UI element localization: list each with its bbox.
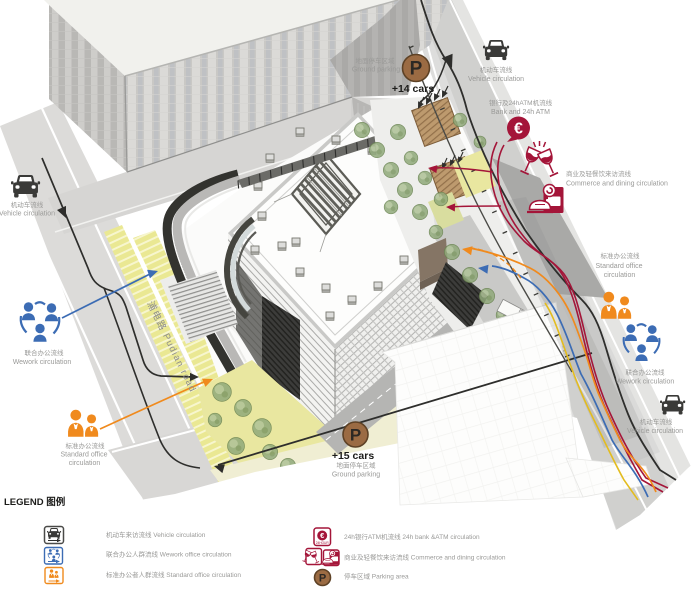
svg-text:地面停车区域: 地面停车区域 bbox=[337, 461, 377, 470]
svg-text:LEGEND 图例: LEGEND 图例 bbox=[4, 496, 65, 508]
svg-text:联合办公人群流线 Wework office circula: 联合办公人群流线 Wework office circulation bbox=[106, 550, 232, 559]
svg-text:标准办公流线: 标准办公流线 bbox=[601, 251, 641, 260]
svg-text:Ground parking: Ground parking bbox=[352, 67, 400, 74]
svg-text:24HOUR: 24HOUR bbox=[316, 541, 330, 545]
svg-text:联合办公流线: 联合办公流线 bbox=[25, 348, 65, 357]
svg-text:商业及轻餐饮来访流线: 商业及轻餐饮来访流线 bbox=[566, 169, 632, 178]
svg-text:机动车来访流线 Vehicle circulation: 机动车来访流线 Vehicle circulation bbox=[106, 530, 206, 539]
svg-text:Bank and 24h ATM: Bank and 24h ATM bbox=[491, 109, 550, 116]
svg-text:Wework circulation: Wework circulation bbox=[13, 359, 72, 366]
svg-text:Standard office: Standard office bbox=[61, 452, 108, 459]
svg-text:机动车流线: 机动车流线 bbox=[480, 65, 513, 74]
svg-text:银行及24hATM机流线: 银行及24hATM机流线 bbox=[489, 98, 553, 107]
svg-text:Vehicle circulation: Vehicle circulation bbox=[627, 428, 683, 435]
svg-text:24h银行ATM机流线 24h bank &ATM circ: 24h银行ATM机流线 24h bank &ATM circulation bbox=[344, 532, 480, 541]
svg-text:Ground parking: Ground parking bbox=[332, 472, 380, 479]
svg-text:机动车流线: 机动车流线 bbox=[640, 417, 673, 426]
svg-text:€: € bbox=[514, 121, 523, 138]
svg-text:P: P bbox=[319, 572, 326, 584]
svg-text:标准办公流线: 标准办公流线 bbox=[66, 441, 106, 450]
svg-text:Wework circulation: Wework circulation bbox=[616, 379, 675, 386]
svg-text:P: P bbox=[350, 426, 361, 445]
svg-text:机动车流线: 机动车流线 bbox=[11, 200, 44, 209]
svg-text:circulation: circulation bbox=[69, 460, 101, 467]
svg-text:Standard office: Standard office bbox=[596, 263, 643, 270]
svg-text:Vehicle circulation: Vehicle circulation bbox=[0, 211, 55, 218]
svg-text:商业及轻餐饮来访流线 Commerce and dining: 商业及轻餐饮来访流线 Commerce and dining circulati… bbox=[344, 553, 506, 562]
svg-text:Vehicle circulation: Vehicle circulation bbox=[468, 76, 524, 83]
svg-text:地面停车区域: 地面停车区域 bbox=[356, 56, 396, 65]
svg-text:+14 cars: +14 cars bbox=[392, 83, 434, 95]
svg-text:停车区域 Parking area: 停车区域 Parking area bbox=[344, 572, 409, 581]
svg-text:circulation: circulation bbox=[604, 272, 636, 279]
svg-text:Commerce and dining circulatio: Commerce and dining circulation bbox=[566, 181, 668, 188]
svg-text:联合办公流线: 联合办公流线 bbox=[626, 368, 666, 377]
svg-text:+15 cars: +15 cars bbox=[332, 450, 374, 462]
svg-text:P: P bbox=[410, 58, 423, 79]
svg-text:标准办公者人群流线 Standard office circ: 标准办公者人群流线 Standard office circulation bbox=[106, 570, 241, 579]
